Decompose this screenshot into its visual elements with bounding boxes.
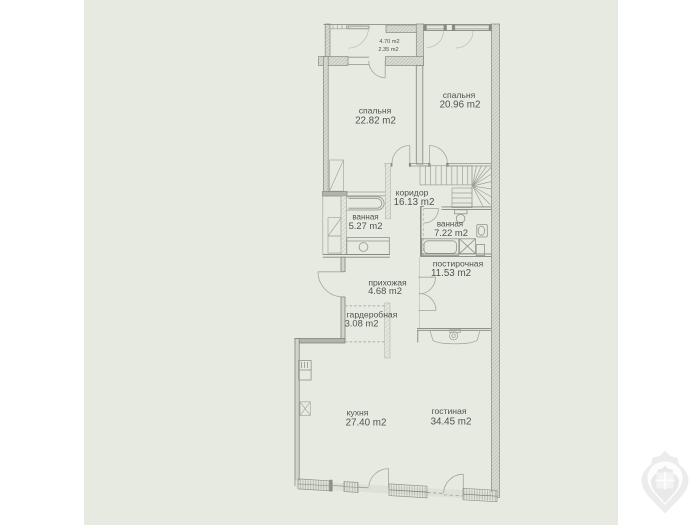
svg-text:27.40 m2: 27.40 m2 — [346, 418, 387, 429]
svg-text:4.68 m2: 4.68 m2 — [368, 285, 402, 296]
svg-text:3.08 m2: 3.08 m2 — [345, 318, 379, 329]
svg-text:2.35 m2: 2.35 m2 — [378, 47, 398, 53]
svg-text:11.53 m2: 11.53 m2 — [431, 268, 471, 279]
svg-text:7.22 m2: 7.22 m2 — [434, 227, 468, 238]
svg-text:16.13 m2: 16.13 m2 — [394, 197, 435, 208]
svg-text:постирочная: постирочная — [433, 259, 484, 269]
svg-text:20.96 m2: 20.96 m2 — [440, 100, 481, 111]
svg-text:спальня: спальня — [443, 90, 476, 100]
svg-text:спальня: спальня — [359, 106, 392, 116]
svg-text:гостиная: гостиная — [432, 406, 467, 416]
svg-text:5.27 m2: 5.27 m2 — [349, 220, 383, 231]
svg-text:4.70 m2: 4.70 m2 — [379, 39, 399, 45]
svg-text:34.45 m2: 34.45 m2 — [431, 417, 472, 428]
svg-text:22.82 m2: 22.82 m2 — [355, 116, 396, 127]
svg-text:коридор: коридор — [396, 188, 429, 198]
svg-text:кухня: кухня — [347, 408, 369, 418]
